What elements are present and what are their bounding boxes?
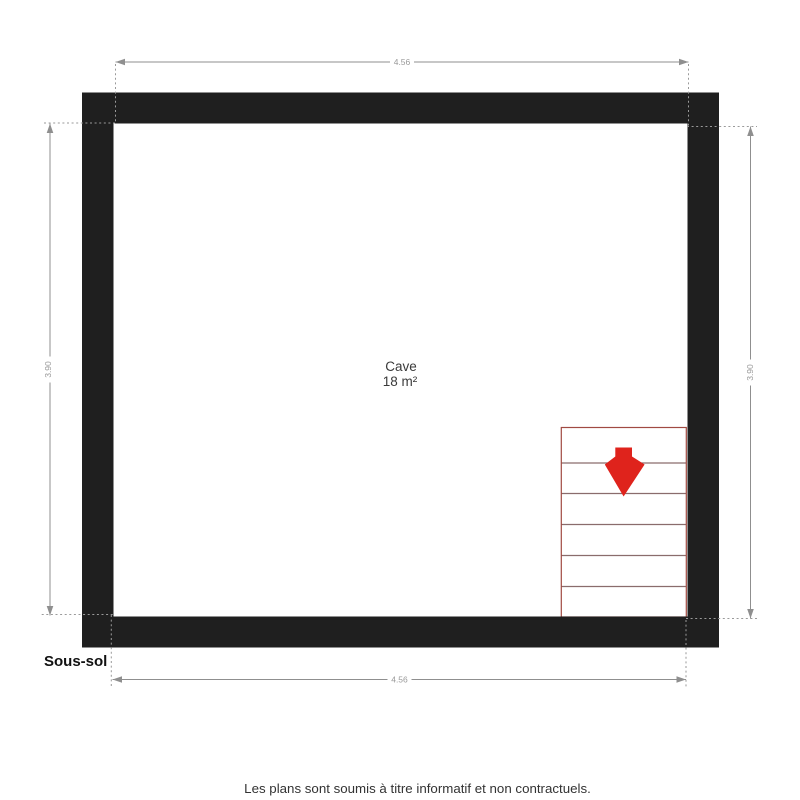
- svg-text:Sous-sol: Sous-sol: [44, 653, 107, 670]
- svg-text:4.56: 4.56: [391, 675, 408, 685]
- svg-text:3.90: 3.90: [43, 361, 53, 378]
- svg-text:3.90: 3.90: [745, 364, 755, 381]
- svg-text:Les plans sont soumis à titre: Les plans sont soumis à titre informatif…: [244, 781, 591, 796]
- svg-text:18 m²: 18 m²: [383, 374, 418, 389]
- svg-text:Cave: Cave: [385, 359, 417, 374]
- svg-text:4.56: 4.56: [394, 57, 411, 67]
